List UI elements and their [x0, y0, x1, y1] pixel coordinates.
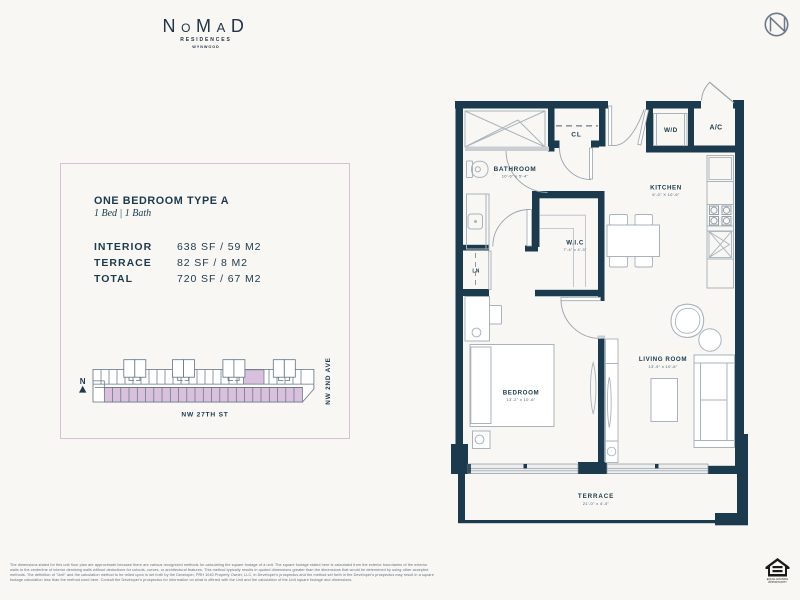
- svg-text:The dimensions stated for this: The dimensions stated for this unit floo…: [10, 563, 428, 567]
- svg-text:KITCHEN: KITCHEN: [650, 185, 682, 192]
- svg-text:NW 27TH ST: NW 27TH ST: [181, 412, 228, 419]
- svg-text:footage calculation less than: footage calculation less than the method…: [10, 578, 352, 582]
- svg-text:A/C: A/C: [709, 125, 722, 132]
- svg-text:13'-2" x 10'-6": 13'-2" x 10'-6": [506, 397, 535, 402]
- svg-text:W.I.C: W.I.C: [566, 239, 584, 246]
- svg-text:W/D: W/D: [664, 127, 678, 134]
- svg-text:methods. The definition of "Un: methods. The definition of "Unit" and th…: [10, 573, 434, 577]
- svg-text:walls to the centerline of int: walls to the centerline of interior demi…: [10, 568, 428, 572]
- svg-text:OPPORTUNITY: OPPORTUNITY: [768, 580, 787, 584]
- svg-text:CL: CL: [571, 132, 582, 139]
- svg-text:10'-6" x 5'-4": 10'-6" x 5'-4": [502, 174, 529, 179]
- svg-text:13'-9" x 10'-6": 13'-9" x 10'-6": [648, 364, 677, 369]
- svg-text:21'-0" x 4'-0": 21'-0" x 4'-0": [583, 501, 610, 506]
- svg-text:N: N: [80, 377, 86, 386]
- svg-text:LIVING ROOM: LIVING ROOM: [639, 356, 687, 363]
- svg-text:7'-4" x 4'-3": 7'-4" x 4'-3": [563, 248, 586, 252]
- svg-text:BEDROOM: BEDROOM: [503, 390, 540, 397]
- svg-text:BATHROOM: BATHROOM: [494, 166, 537, 173]
- svg-text:LN: LN: [472, 269, 479, 275]
- svg-text:6'-0" X 10'-6": 6'-0" X 10'-6": [652, 192, 680, 197]
- svg-text:TERRACE: TERRACE: [578, 493, 614, 500]
- svg-text:NW 2ND AVE: NW 2ND AVE: [325, 357, 332, 404]
